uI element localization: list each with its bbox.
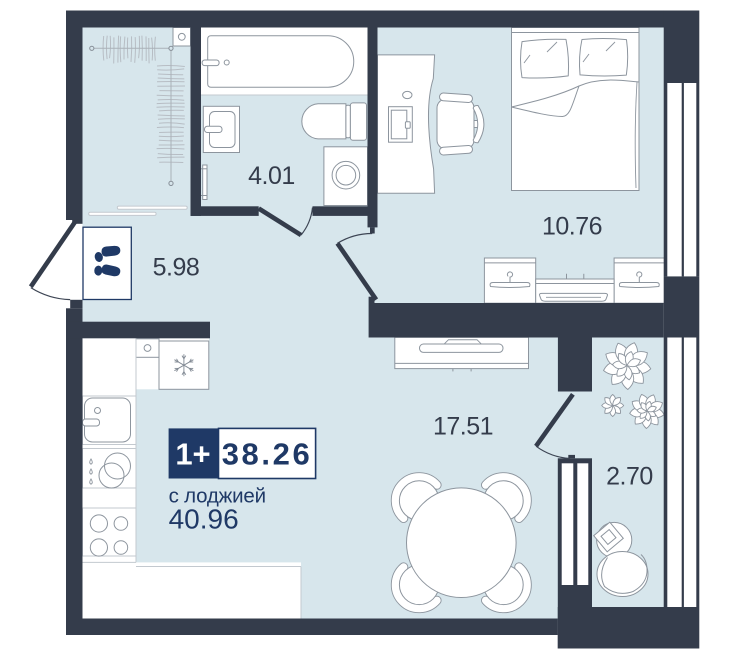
svg-text:17.51: 17.51 xyxy=(433,413,493,441)
svg-text:38.26: 38.26 xyxy=(222,437,313,472)
svg-text:5.98: 5.98 xyxy=(153,254,200,282)
svg-text:2.70: 2.70 xyxy=(606,463,653,491)
svg-text:40.96: 40.96 xyxy=(169,504,239,535)
svg-text:4.01: 4.01 xyxy=(248,162,295,190)
svg-text:10.76: 10.76 xyxy=(542,213,602,241)
svg-text:1+: 1+ xyxy=(175,437,210,472)
